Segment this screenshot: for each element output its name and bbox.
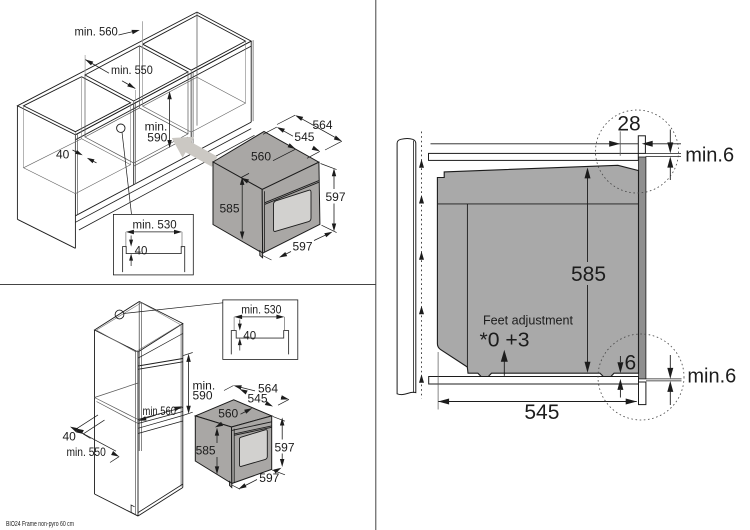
svg-text:585: 585: [219, 202, 239, 216]
svg-text:585: 585: [196, 443, 216, 457]
svg-text:40: 40: [63, 430, 77, 444]
svg-text:BIO24 Frame non-pyro 60 cm: BIO24 Frame non-pyro 60 cm: [6, 519, 74, 528]
svg-text:min. 550: min. 550: [67, 445, 107, 459]
svg-text:545: 545: [294, 130, 314, 144]
svg-text:597: 597: [259, 471, 279, 485]
svg-text:40: 40: [243, 331, 256, 343]
svg-text:545: 545: [248, 391, 268, 405]
svg-text:Feet adjustment: Feet adjustment: [483, 313, 573, 328]
svg-text:28: 28: [617, 113, 640, 136]
svg-text:597: 597: [274, 441, 294, 455]
svg-text:6: 6: [625, 352, 637, 375]
svg-text:min. 530: min. 530: [133, 219, 177, 231]
svg-text:min.6: min.6: [687, 366, 736, 388]
svg-text:40: 40: [135, 245, 148, 257]
svg-text:560: 560: [251, 150, 271, 164]
svg-text:597: 597: [325, 190, 345, 204]
svg-text:min. 560: min. 560: [75, 24, 119, 38]
svg-text:*0 +3: *0 +3: [480, 330, 530, 352]
svg-text:597: 597: [293, 240, 313, 254]
svg-text:564: 564: [313, 118, 333, 132]
svg-text:min. 530: min. 530: [241, 304, 281, 316]
svg-text:590: 590: [147, 131, 167, 145]
svg-text:40: 40: [56, 147, 70, 161]
svg-text:min.6: min.6: [685, 145, 734, 167]
svg-text:545: 545: [524, 401, 559, 424]
svg-text:590: 590: [193, 388, 213, 402]
svg-text:560: 560: [218, 406, 238, 420]
svg-text:585: 585: [571, 263, 606, 286]
svg-text:min. 550: min. 550: [111, 63, 153, 77]
svg-text:min.560: min.560: [143, 404, 177, 418]
